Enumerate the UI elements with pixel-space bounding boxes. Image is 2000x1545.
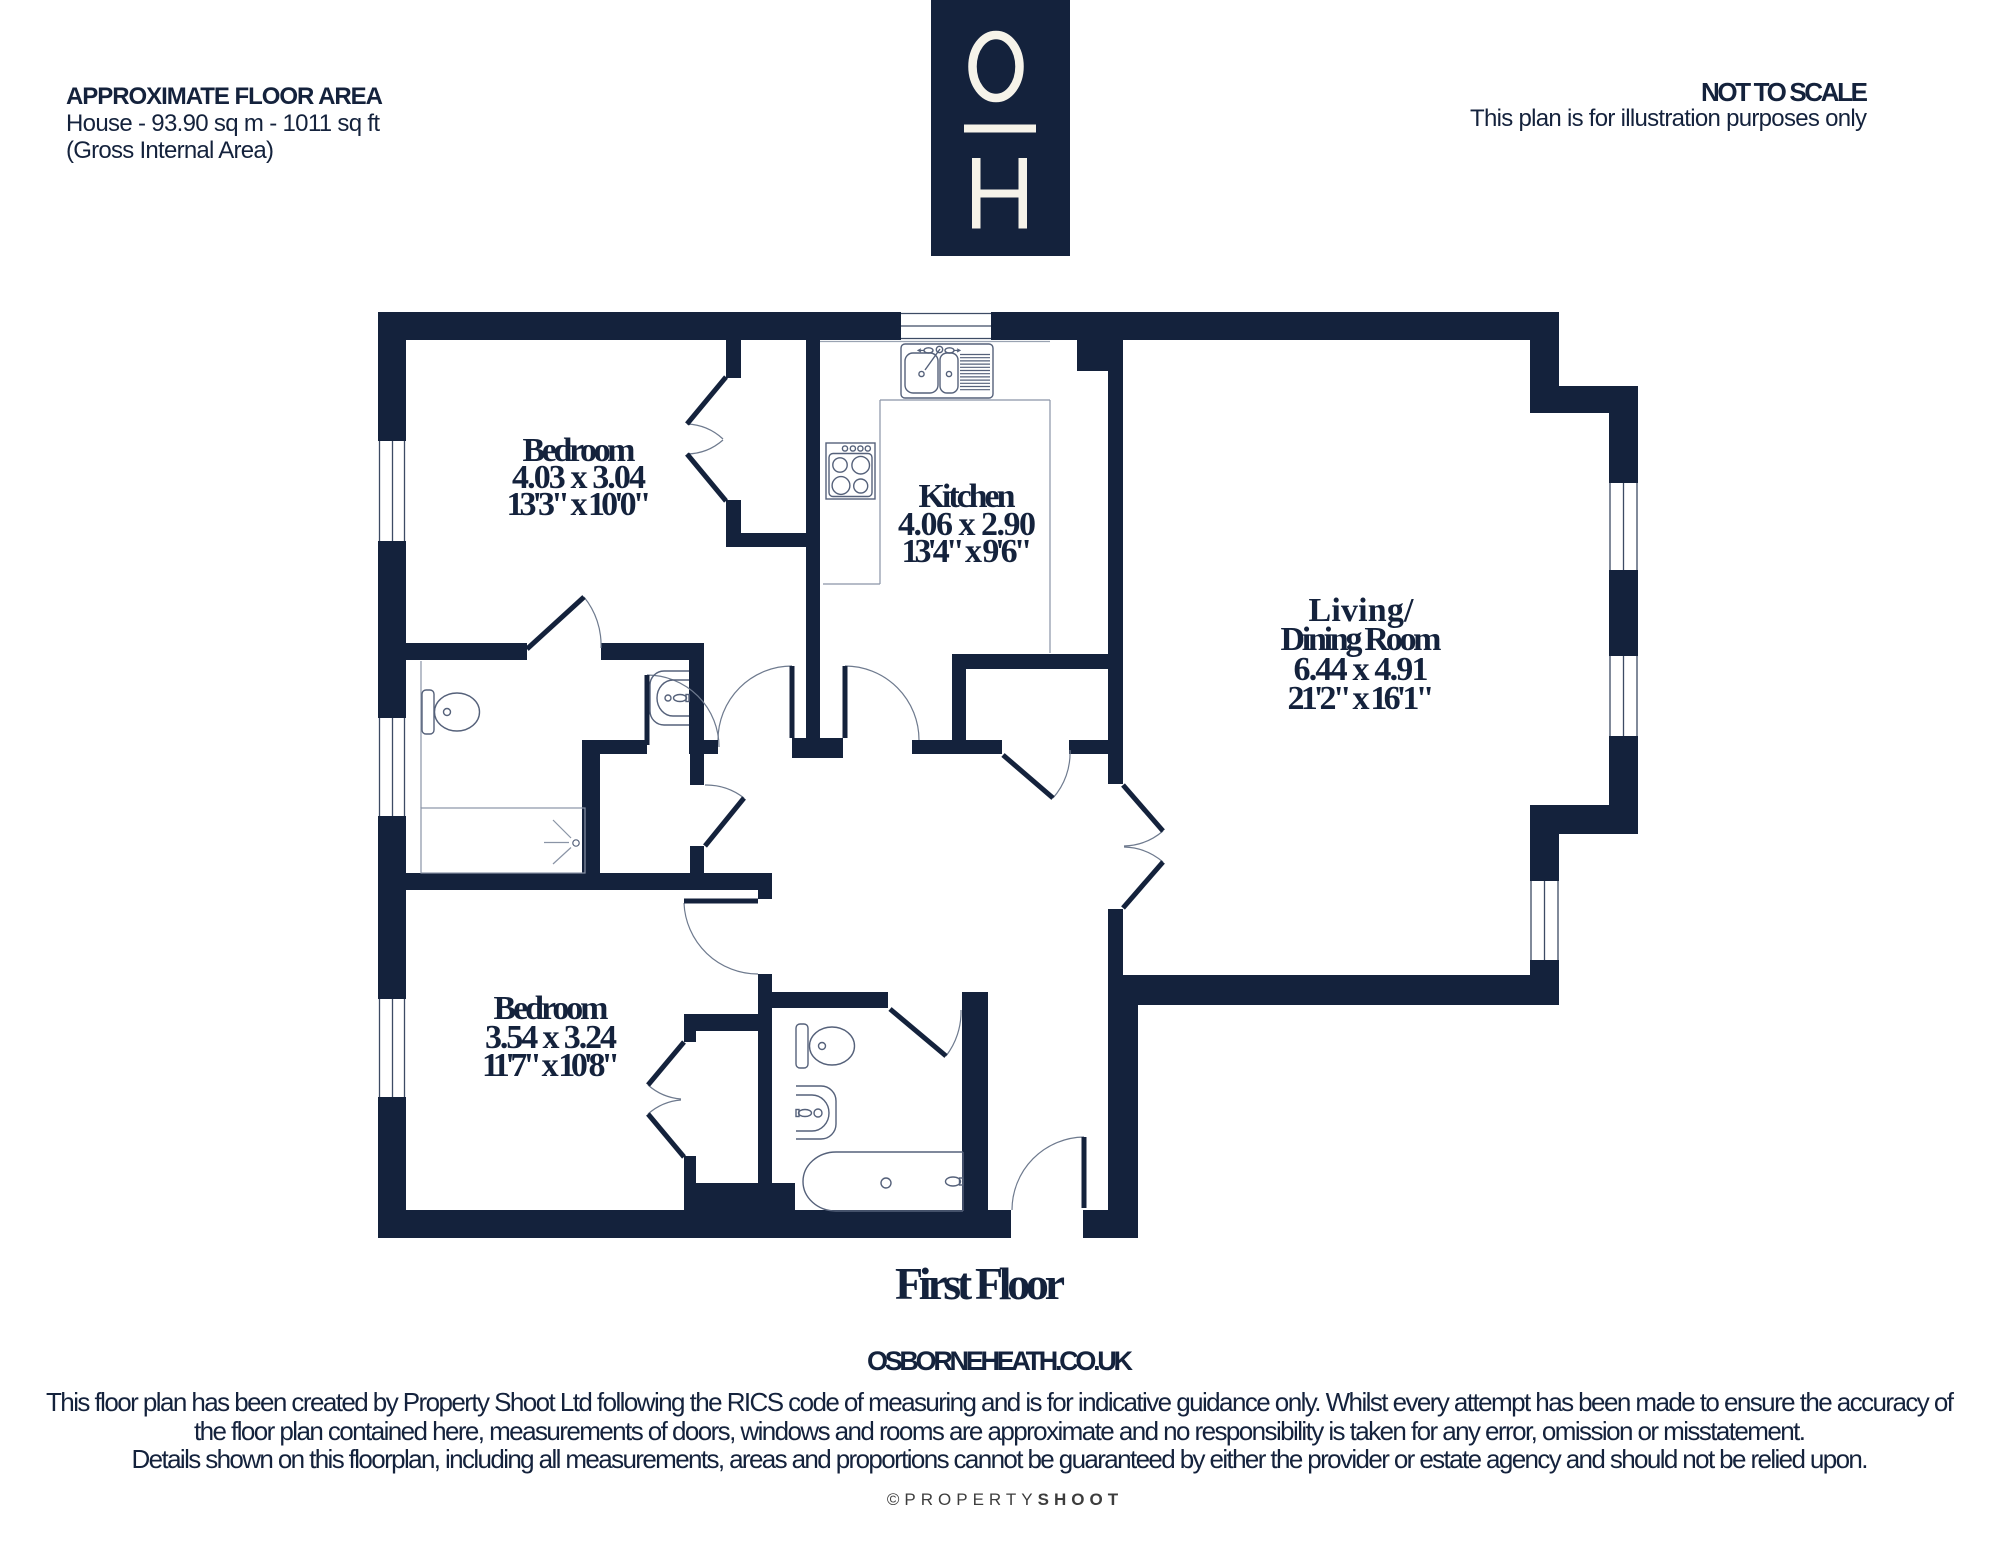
svg-text:OSBORNEHEATH.CO.UK: OSBORNEHEATH.CO.UK	[867, 1346, 1134, 1376]
svg-text:APPROXIMATE FLOOR AREA: APPROXIMATE FLOOR AREA	[66, 83, 383, 110]
svg-text:(Gross Internal Area): (Gross Internal Area)	[66, 137, 274, 164]
svg-text:Details shown on this floorpla: Details shown on this floorplan, includi…	[131, 1444, 1868, 1474]
svg-text:House - 93.90 sq m - 1011 sq f: House - 93.90 sq m - 1011 sq ft	[66, 110, 380, 137]
svg-text:First Floor: First Floor	[895, 1258, 1065, 1309]
svg-text:NOT TO SCALE: NOT TO SCALE	[1701, 77, 1868, 107]
svg-text:the floor plan contained here,: the floor plan contained here, measureme…	[194, 1416, 1806, 1446]
svg-text:©PROPERTYSHOOT: ©PROPERTYSHOOT	[887, 1490, 1123, 1509]
svg-text:21'2" x 16'1": 21'2" x 16'1"	[1288, 680, 1435, 717]
svg-text:This plan is for illustration: This plan is for illustration purposes o…	[1470, 105, 1867, 132]
svg-text:This floor plan has been creat: This floor plan has been created by Prop…	[46, 1387, 1955, 1417]
svg-text:11'7" x 10'8": 11'7" x 10'8"	[482, 1047, 620, 1084]
svg-text:13'3" x 10'0": 13'3" x 10'0"	[507, 486, 652, 523]
svg-text:13'4" x 9'6": 13'4" x 9'6"	[902, 533, 1033, 570]
